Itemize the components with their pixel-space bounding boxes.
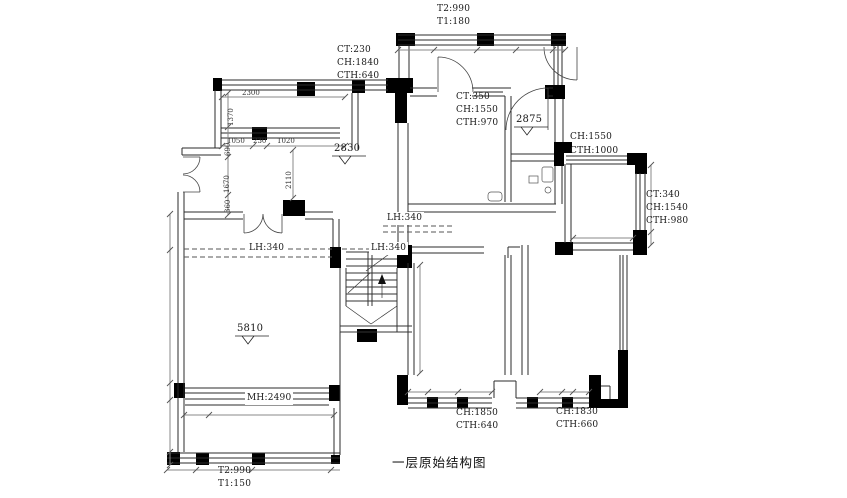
label-line: CT:340 (646, 189, 688, 202)
label-line: CTH:640 (456, 420, 498, 433)
label-line: T2:990 (437, 3, 470, 16)
label-line: CH:1850 (456, 407, 498, 420)
label-bottom-wall-heights: T2:990 T1:150 (218, 465, 251, 491)
label-ceiling-top-left: CT:230 CH:1840 CTH:640 (337, 44, 379, 83)
label-line: CTH:980 (646, 215, 688, 228)
dim-1020: 1020 (277, 137, 295, 145)
elevation-markers (235, 127, 548, 344)
stair-direction-arrow (378, 274, 386, 284)
label-line: CTH:970 (456, 117, 498, 130)
label-line: T1:180 (437, 16, 470, 29)
label-window-bottom-right: CH:1830 CTH:660 (556, 406, 598, 432)
label-line: CT:230 (337, 44, 379, 57)
label-lintel-stairs: LH:340 (369, 242, 408, 255)
elevation-room-right: 2875 (516, 113, 542, 126)
label-line: CH:1830 (556, 406, 598, 419)
elevation-hall: 2830 (334, 142, 360, 155)
dim-690: 690 (224, 143, 232, 156)
label-window-right: CH:1550 CTH:1000 (570, 131, 618, 159)
elevation-living: 5810 (237, 322, 263, 335)
label-line: CTH:640 (337, 70, 379, 83)
label-line: CTH:1000 (570, 145, 618, 159)
dim-2110: 2110 (285, 171, 293, 189)
floor-plan-drawing (0, 0, 847, 498)
fixtures (488, 167, 553, 201)
floor-plan-canvas: T2:990 T1:180 CT:230 CH:1840 CTH:640 CT:… (0, 0, 847, 498)
label-top-wall-heights: T2:990 T1:180 (437, 3, 470, 29)
dim-360: 360 (224, 200, 232, 213)
label-ceiling-far-right: CT:340 CH:1540 CTH:980 (646, 189, 688, 228)
drawing-title: 一层原始结构图 (392, 452, 487, 471)
label-line: T2:990 (218, 465, 251, 478)
label-line: CH:1840 (337, 57, 379, 70)
dim-230: 230 (253, 137, 266, 145)
label-line: CT:350 (456, 91, 498, 104)
dim-1670: 1670 (223, 175, 231, 193)
label-window-bottom-left: CH:1850 CTH:640 (456, 407, 498, 433)
label-lintel-living: LH:340 (247, 242, 286, 255)
label-line: CTH:660 (556, 419, 598, 432)
label-ceiling-center: CT:350 CH:1550 CTH:970 (456, 91, 498, 130)
label-line: CH:1550 (570, 131, 618, 145)
dim-1370: 1370 (227, 108, 235, 126)
label-line: T1:150 (218, 478, 251, 491)
label-line: CH:1550 (456, 104, 498, 117)
dim-2300: 2300 (242, 89, 260, 97)
label-line: CH:1540 (646, 202, 688, 215)
label-window-opening: MH:2490 (245, 392, 293, 405)
label-lintel-hall: LH:340 (385, 212, 424, 225)
